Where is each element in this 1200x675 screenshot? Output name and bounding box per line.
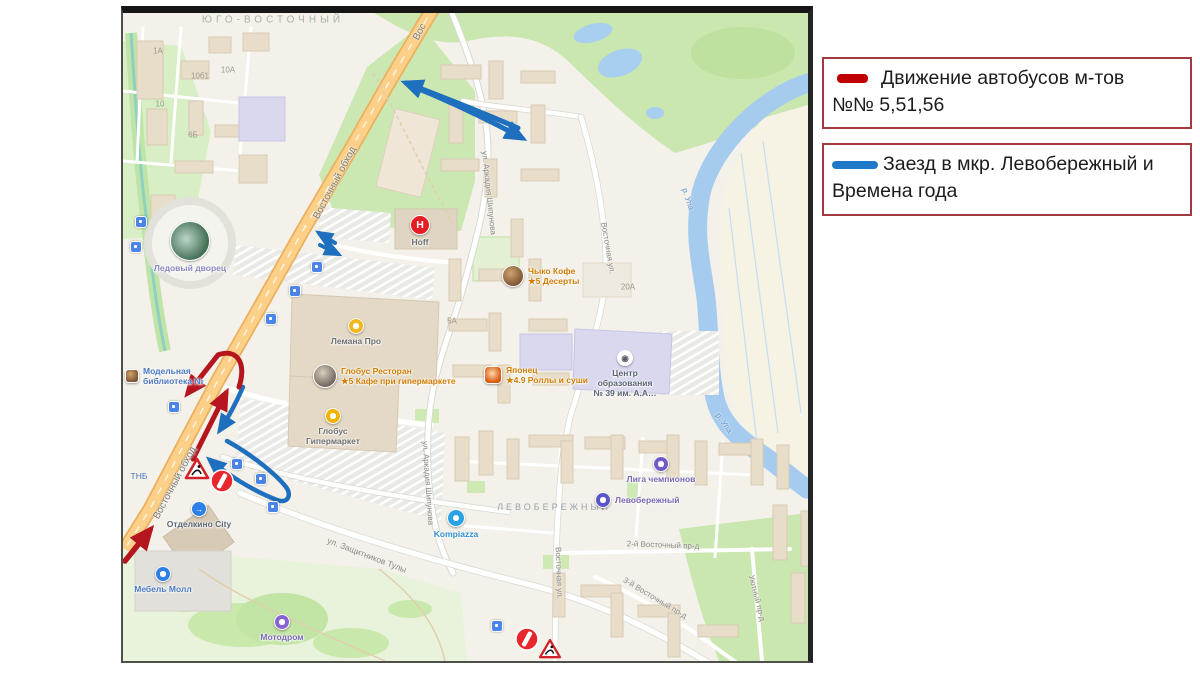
ledovy-dvorets-label: Ледовый дворец — [154, 263, 226, 273]
bus-stop-icon — [311, 261, 323, 273]
tsentr-obrazovaniya-glyph: ◉ — [621, 353, 628, 363]
tsentr-obrazovaniya-icon: ◉ — [617, 350, 633, 366]
liga-chempionov-icon — [653, 456, 669, 472]
legend: Движение автобусов м-тов №№ 5,51,56 Заез… — [822, 57, 1192, 230]
ledovy-dvorets-icon — [170, 221, 210, 261]
globus-gipermarket-icon — [325, 408, 341, 424]
slide: Восточный обходВосточный обходВосул. Арк… — [0, 0, 1200, 675]
house-number: 10б1 — [191, 72, 209, 81]
hoff-label-line: Hoff — [412, 237, 429, 247]
chyko-kofe-label-line: Чыко Кофе — [528, 266, 579, 276]
yaponets-icon — [484, 366, 502, 384]
liga-chempionov-label: Лига чемпионов — [627, 474, 696, 484]
street-label: Восточный обход — [311, 145, 358, 221]
street-label: Уютный пр-д — [747, 574, 767, 622]
house-number: 10А — [221, 66, 235, 75]
mebel-moll-label: Мебель Молл — [134, 584, 192, 594]
lemana-pro-label-line: Лемана Про — [331, 336, 381, 346]
bus-stop-icon — [231, 458, 243, 470]
levoberezhny-label-line: Левобережный — [615, 495, 679, 505]
liga-chempionov-dot — [658, 461, 663, 466]
street-label: 3-й Восточный пр-д — [622, 575, 689, 620]
bus-stop-icon — [267, 501, 279, 513]
bus-stop-icon — [130, 241, 142, 253]
blue-detour-swatch — [832, 161, 878, 169]
modelnaya-biblioteka-label-line: библиотека № — [143, 376, 204, 386]
bus-stop-icon — [135, 216, 147, 228]
legend-bus-line1: Движение автобусов м-тов — [881, 66, 1124, 92]
motodrom-label: Мотодром — [260, 632, 303, 642]
street-label: р. Упа — [680, 187, 695, 211]
modelnaya-biblioteka-label-line: Модельная — [143, 366, 204, 376]
globus-restoran-label-line: ★5 Кафе при гипермаркете — [341, 376, 456, 386]
bus-stop-icon — [255, 473, 267, 485]
street-label: Восточная ул. — [554, 547, 565, 599]
globus-restoran-icon — [313, 364, 337, 388]
otdelkino-city-label: Отделкино City — [167, 519, 231, 529]
map-panel: Восточный обходВосточный обходВосул. Арк… — [121, 6, 813, 663]
hoff-glyph: H — [416, 219, 424, 231]
kompiazza-label: Kompiazza — [434, 529, 478, 539]
house-number: 6Б — [188, 131, 198, 140]
modelnaya-biblioteka-label: Модельнаябиблиотека № — [143, 366, 204, 386]
tsentr-obrazovaniya-label-line: Центр — [593, 368, 656, 378]
red-route-swatch — [837, 74, 868, 83]
house-number: 20А — [621, 283, 635, 292]
globus-gipermarket-label-line: Глобус — [306, 426, 360, 436]
otdelkino-city-icon: → — [191, 501, 207, 517]
motodrom-label-line: Мотодром — [260, 632, 303, 642]
street-label: ТНБ — [131, 471, 148, 481]
chyko-kofe-label: Чыко Кофе★5 Десерты — [528, 266, 579, 286]
otdelkino-city-label-line: Отделкино City — [167, 519, 231, 529]
yaponets-label-line: ★4.9 Роллы и суши — [506, 375, 588, 385]
ledovy-dvorets-label-line: Ледовый дворец — [154, 263, 226, 273]
globus-gipermarket-label: ГлобусГипермаркет — [306, 426, 360, 446]
district-label: ЮГО-ВОСТОЧНЫЙ — [202, 15, 344, 26]
tsentr-obrazovaniya-label-line: образования — [593, 378, 656, 388]
street-label: 2-й Восточный пр-д — [627, 539, 700, 551]
street-label: Вос — [411, 22, 429, 42]
lemana-pro-icon — [348, 318, 364, 334]
house-number: 10 — [156, 100, 165, 109]
kompiazza-icon — [447, 509, 465, 527]
legend-item-bus-routes: Движение автобусов м-тов №№ 5,51,56 — [822, 57, 1192, 129]
motodrom-icon — [274, 614, 290, 630]
motodrom-dot — [279, 619, 284, 624]
district-label: ЛЕВОБЕРЕЖНЫЙ — [497, 502, 611, 512]
map-labels-layer: Восточный обходВосточный обходВосул. Арк… — [123, 13, 808, 661]
kompiazza-label-line: Kompiazza — [434, 529, 478, 539]
street-label: ул. Защитников Тулы — [326, 535, 408, 574]
liga-chempionov-label-line: Лига чемпионов — [627, 474, 696, 484]
house-number: 1А — [153, 47, 163, 56]
tsentr-obrazovaniya-label: Центробразования№ 39 им. А.А… — [593, 368, 656, 398]
globus-restoran-label-line: Глобус Ресторан — [341, 366, 456, 376]
mebel-moll-dot — [160, 571, 165, 576]
yaponets-label: Японец★4.9 Роллы и суши — [506, 365, 588, 385]
street-label: ул. Аркадия Шипунова — [421, 441, 436, 526]
yaponets-label-line: Японец — [506, 365, 588, 375]
levoberezhny-label: Левобережный — [615, 495, 679, 505]
legend-detour-line1: Заезд в мкр. Левобережный и — [883, 152, 1154, 178]
legend-item-detour: Заезд в мкр. Левобережный и Времена года — [822, 143, 1192, 215]
street-label: р. Упа — [714, 411, 734, 435]
globus-gipermarket-label-line: Гипермаркет — [306, 436, 360, 446]
mebel-moll-label-line: Мебель Молл — [134, 584, 192, 594]
levoberezhny-dot — [600, 497, 605, 502]
kompiazza-dot — [453, 515, 459, 521]
bus-stop-icon — [289, 285, 301, 297]
hoff-icon: H — [410, 215, 430, 235]
hoff-label: Hoff — [412, 237, 429, 247]
house-number: 5А — [447, 317, 457, 326]
legend-bus-line2: №№ 5,51,56 — [832, 93, 1180, 119]
bus-stop-icon — [168, 401, 180, 413]
lemana-pro-dot — [353, 323, 358, 328]
levoberezhny-icon — [595, 492, 611, 508]
street-label: ул. Аркадия Шипунова — [480, 151, 498, 236]
chyko-kofe-label-line: ★5 Десерты — [528, 276, 579, 286]
mebel-moll-icon — [155, 566, 171, 582]
bus-stop-icon — [265, 313, 277, 325]
globus-restoran-label: Глобус Ресторан★5 Кафе при гипермаркете — [341, 366, 456, 386]
street-label: Восточная ул. — [599, 222, 617, 275]
chyko-kofe-icon — [502, 265, 524, 287]
legend-detour-line2: Времена года — [832, 179, 1180, 205]
lemana-pro-label: Лемана Про — [331, 336, 381, 346]
tsentr-obrazovaniya-label-line: № 39 им. А.А… — [593, 388, 656, 398]
bus-stop-icon — [491, 620, 503, 632]
otdelkino-city-glyph: → — [195, 504, 203, 514]
globus-gipermarket-dot — [330, 413, 335, 418]
modelnaya-biblioteka-icon — [125, 369, 139, 383]
